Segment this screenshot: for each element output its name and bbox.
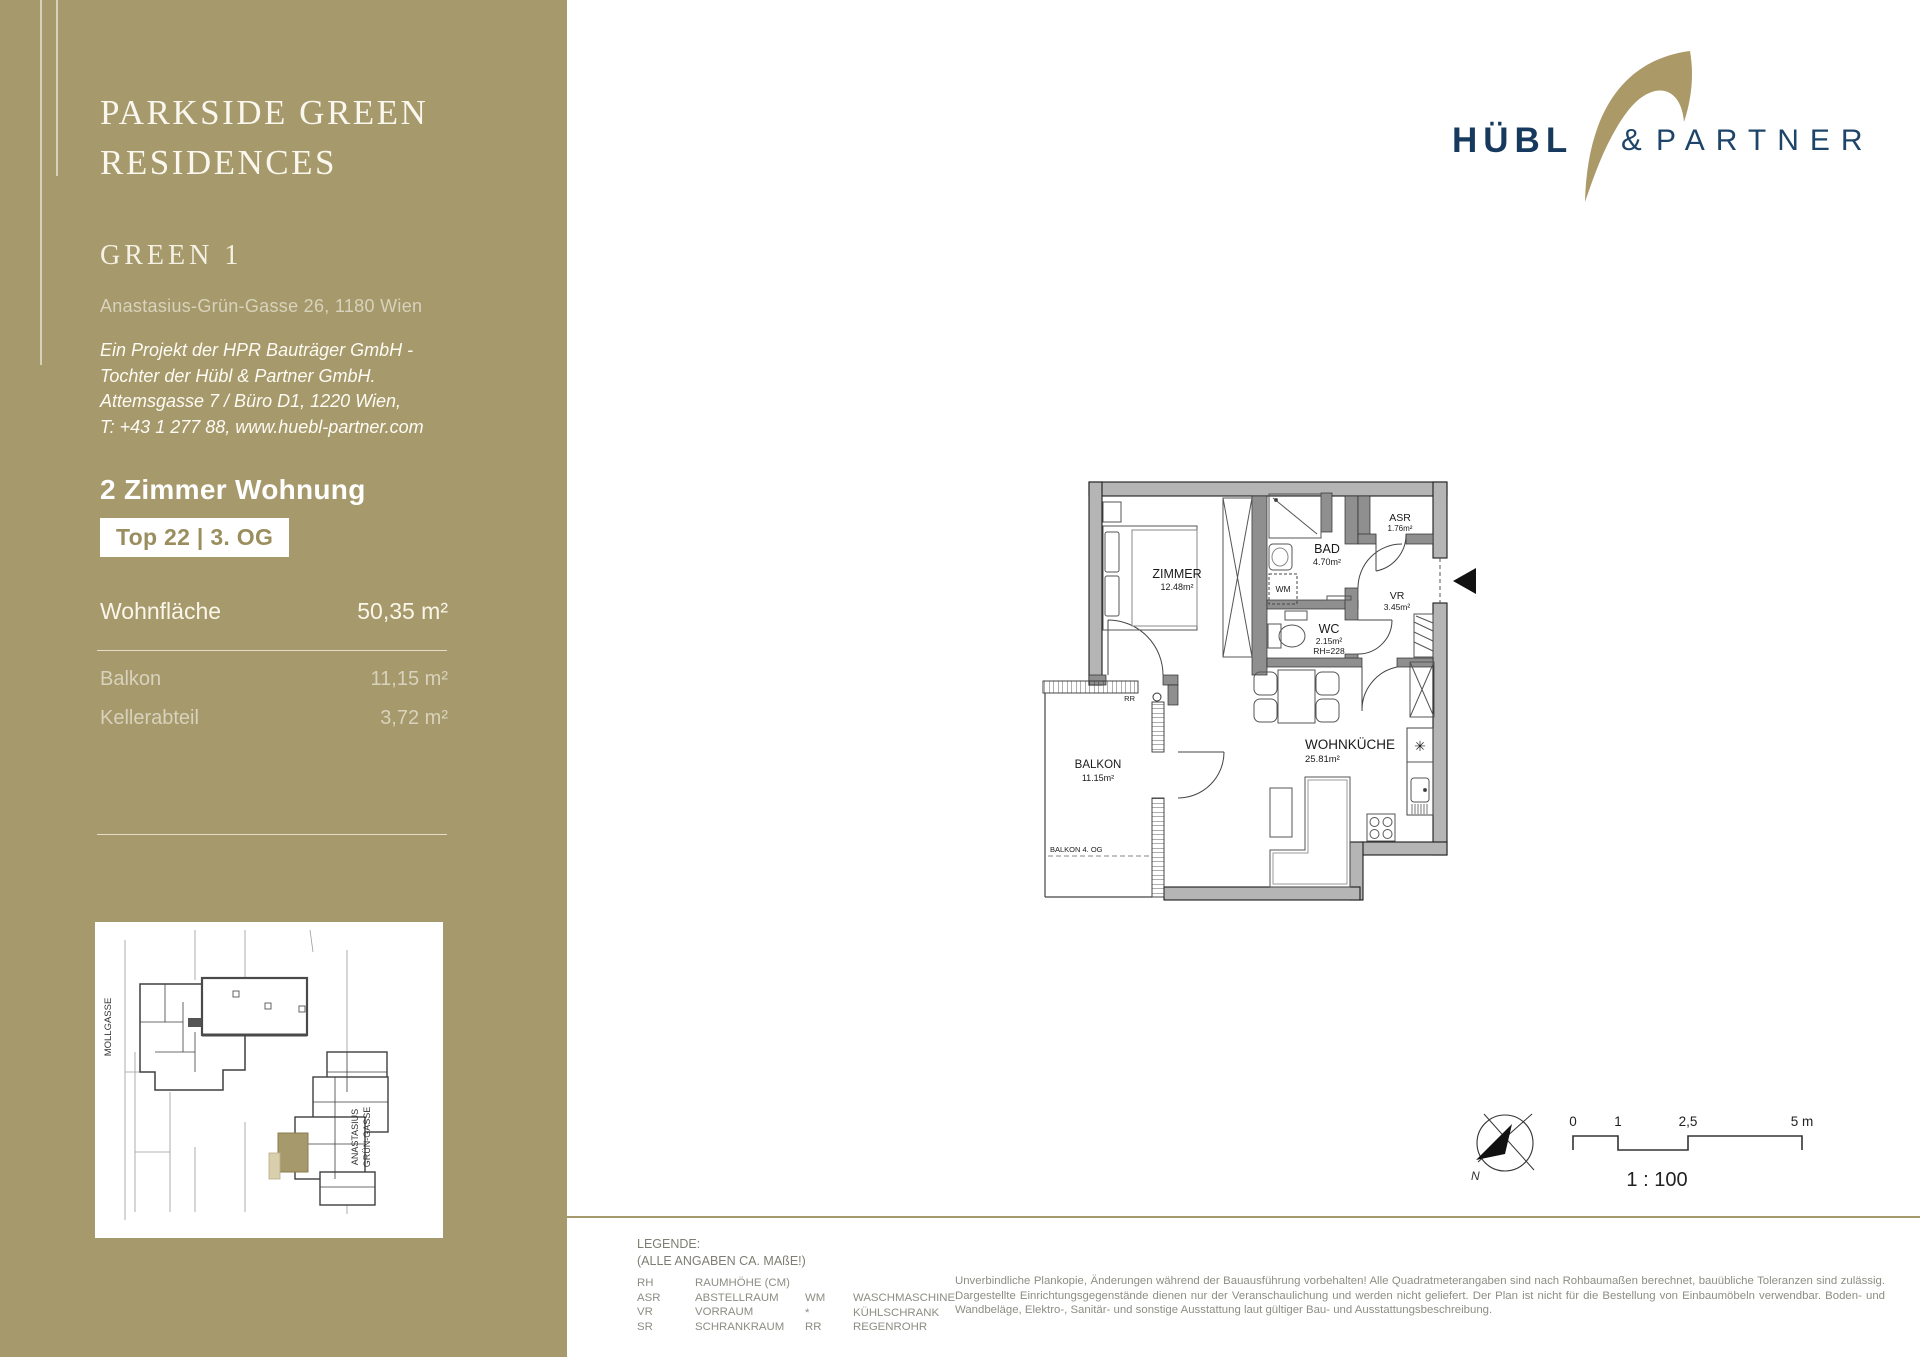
unit-type: 2 Zimmer Wohnung [100, 474, 366, 506]
scale-and-compass: N 0 1 2,5 5 m 1 : 100 [1470, 1098, 1880, 1210]
area-keller-label: Kellerabteil [100, 707, 199, 730]
legend-desc: REGENROHR [853, 1320, 927, 1335]
room-label-balkon: BALKON [1075, 759, 1122, 771]
entrance-arrow-icon [1453, 568, 1476, 594]
logo-ampersand: & [1621, 122, 1644, 157]
room-label-asr: ASR [1389, 512, 1411, 524]
legend-item: * KÜHLSCHRANK [805, 1306, 955, 1321]
room-label-bad: BAD [1314, 542, 1340, 556]
legend-subtitle: (ALLE ANGABEN CA. MAßE!) [637, 1253, 806, 1270]
legend-abbr: SR [637, 1320, 695, 1335]
label-rr: RR [1124, 694, 1135, 703]
room-label-vr: VR [1390, 590, 1405, 602]
legend-title: LEGENDE: [637, 1236, 806, 1253]
legend-item: RH RAUMHÖHE (CM) [637, 1276, 790, 1291]
fridge-icon: ✳ [1414, 738, 1426, 754]
divider [97, 834, 447, 835]
legend-item: VR VORRAUM [637, 1305, 790, 1320]
unit-badge: Top 22 | 3. OG [100, 518, 289, 557]
decor-line-2 [56, 0, 58, 176]
legend-desc: SCHRANKRAUM [695, 1320, 784, 1335]
area-row-balkon: Balkon 11,15 m² [100, 668, 448, 691]
floor-plan: ZIMMER 12.48m² BAD 4.70m² WM ASR 1.76m² … [1040, 470, 1500, 910]
legend-item: WM WASCHMASCHINE [805, 1291, 955, 1306]
company-logo: HÜBL & PARTNER [1440, 40, 1910, 210]
area-main-value: 50,35 m² [357, 598, 448, 625]
scale-ratio: 1 : 100 [1626, 1169, 1687, 1191]
room-area-wohnkueche: 25.81m² [1305, 754, 1340, 765]
street-label-anastasius: ANASTASIUS [350, 1109, 360, 1165]
balcony-floor [1045, 681, 1164, 897]
developer-info: Ein Projekt der HPR Bauträger GmbH - Toc… [100, 338, 424, 440]
room-area-vr: 3.45m² [1384, 602, 1411, 612]
legend-desc: KÜHLSCHRANK [853, 1306, 939, 1321]
title-line-1: PARKSIDE GREEN [100, 88, 428, 138]
scale-bar: 0 1 2,5 5 m 1 : 100 [1569, 1114, 1813, 1191]
north-compass-icon: N [1471, 1114, 1534, 1183]
developer-line-2: Tochter der Hübl & Partner GmbH. [100, 364, 424, 390]
legend-abbr: ASR [637, 1291, 695, 1306]
legend-item: RR REGENROHR [805, 1320, 955, 1335]
decor-line-1 [40, 0, 42, 365]
room-area-bad: 4.70m² [1313, 557, 1341, 567]
rainpipe-icon [1153, 693, 1161, 701]
plan-sheet: PARKSIDE GREEN RESIDENCES GREEN 1 Anasta… [0, 0, 1920, 1357]
north-label: N [1471, 1169, 1480, 1183]
street-label-gruen-gasse: GRÜN-GASSE [362, 1107, 372, 1168]
area-main-label: Wohnfläche [100, 598, 221, 625]
legend-desc: ABSTELLRAUM [695, 1291, 779, 1306]
scale-tick-2-5: 2,5 [1679, 1114, 1698, 1129]
area-balkon-value: 11,15 m² [371, 668, 448, 691]
title-line-2: RESIDENCES [100, 138, 428, 188]
area-balkon-label: Balkon [100, 668, 161, 691]
room-area-asr: 1.76m² [1388, 524, 1413, 533]
logo-word-partner: PARTNER [1656, 124, 1874, 157]
divider [97, 650, 447, 651]
legend-column-left: RH RAUMHÖHE (CM) ASR ABSTELLRAUM VR VORR… [637, 1276, 790, 1334]
page-title: PARKSIDE GREEN RESIDENCES [100, 88, 428, 188]
room-label-zimmer: ZIMMER [1152, 567, 1201, 581]
legend-item: ASR ABSTELLRAUM [637, 1291, 790, 1306]
room-area-balkon: 11.15m² [1082, 773, 1114, 783]
area-row-main: Wohnfläche 50,35 m² [100, 598, 448, 625]
developer-line-1: Ein Projekt der HPR Bauträger GmbH - [100, 338, 424, 364]
building-name: GREEN 1 [100, 240, 242, 272]
legend-abbr: * [805, 1306, 853, 1321]
street-label-mollgasse: MOLLGASSE [103, 998, 114, 1057]
room-label-wohnkueche: WOHNKÜCHE [1305, 737, 1395, 752]
building-address: Anastasius-Grün-Gasse 26, 1180 Wien [100, 296, 422, 317]
site-highlighted-unit [278, 1133, 308, 1172]
legend-desc: RAUMHÖHE (CM) [695, 1276, 790, 1291]
legend-abbr: RH [637, 1276, 695, 1291]
room-area-wc: 2.15m² [1316, 636, 1343, 646]
site-plan-drawing: MOLLGASSE ANASTASIUS GRÜN-GASSE [95, 922, 443, 1238]
legend-abbr: WM [805, 1291, 853, 1306]
label-wm: WM [1275, 584, 1290, 594]
label-balkon-4og: BALKON 4. OG [1050, 845, 1103, 854]
room-area-zimmer: 12.48m² [1160, 582, 1193, 592]
legend-desc: VORRAUM [695, 1305, 753, 1320]
disclaimer-text: Unverbindliche Plankopie, Änderungen wäh… [955, 1274, 1885, 1318]
sidebar: PARKSIDE GREEN RESIDENCES GREEN 1 Anasta… [0, 0, 567, 1357]
site-courtyard [202, 978, 307, 1035]
developer-line-3: Attemsgasse 7 / Büro D1, 1220 Wien, [100, 389, 424, 415]
legend-abbr: VR [637, 1305, 695, 1320]
scale-tick-1: 1 [1614, 1114, 1622, 1129]
room-height-wc: RH=228 [1313, 646, 1345, 656]
scale-tick-5m: 5 m [1791, 1114, 1814, 1129]
legend-column-right: WM WASCHMASCHINE * KÜHLSCHRANK RR REGENR… [805, 1291, 955, 1335]
legend-desc: WASCHMASCHINE [853, 1291, 955, 1306]
footer-divider [567, 1216, 1920, 1218]
legend-header: LEGENDE: (ALLE ANGABEN CA. MAßE!) [637, 1236, 806, 1270]
scale-tick-0: 0 [1569, 1114, 1577, 1129]
legend-item: SR SCHRANKRAUM [637, 1320, 790, 1335]
area-keller-value: 3,72 m² [380, 707, 448, 730]
legend-abbr: RR [805, 1320, 853, 1335]
developer-line-4: T: +43 1 277 88, www.huebl-partner.com [100, 415, 424, 441]
site-plan-thumbnail: MOLLGASSE ANASTASIUS GRÜN-GASSE [95, 922, 443, 1238]
site-highlighted-balcony [269, 1153, 280, 1179]
logo-word-huebl: HÜBL [1452, 121, 1573, 160]
area-row-keller: Kellerabteil 3,72 m² [100, 707, 448, 730]
room-label-wc: WC [1319, 622, 1340, 636]
